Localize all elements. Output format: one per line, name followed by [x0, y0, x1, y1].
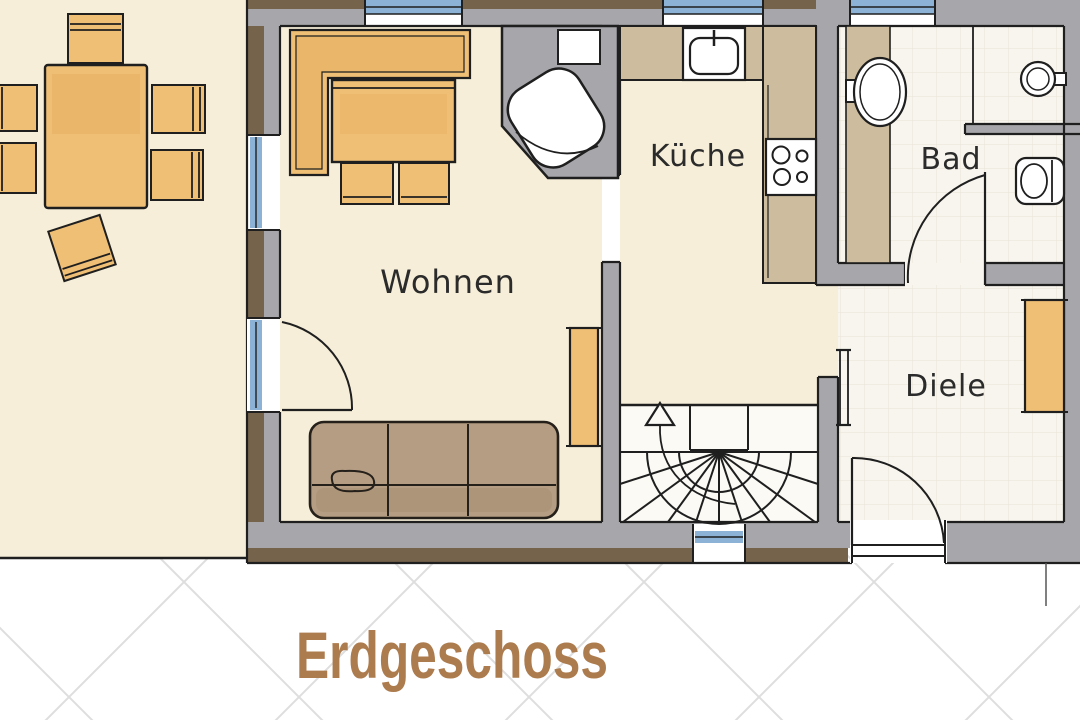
bad-window: [850, 0, 935, 26]
diele-label: Diele: [905, 369, 987, 404]
dining-chair: [68, 14, 123, 63]
page-title: Erdgeschoss: [296, 618, 608, 692]
kitchen-window: [663, 0, 763, 26]
dining-chair: [0, 143, 36, 193]
wardrobe: [1021, 300, 1068, 412]
stove: [766, 139, 816, 195]
dining-chair: [151, 150, 203, 200]
table: [332, 80, 455, 162]
sofa: [310, 422, 558, 518]
sideboard: [566, 328, 602, 446]
wohnen-label: Wohnen: [380, 263, 516, 301]
bad-label: Bad: [920, 142, 981, 177]
stair-window: [693, 524, 745, 563]
dining-chair: [0, 85, 37, 131]
toilet: [1016, 158, 1064, 204]
dining-chair: [152, 85, 205, 133]
dining-chair: [341, 163, 393, 204]
terrace: [0, 0, 247, 558]
kitchen-sink: [683, 28, 745, 80]
kueche-label: Küche: [650, 139, 746, 174]
terrace-side-window: [247, 135, 280, 230]
dining-chair: [399, 163, 449, 204]
wohnen-window: [365, 0, 462, 26]
floor-plan-page: Wohnen Küche Bad Diele Erdgeschoss: [0, 0, 1080, 720]
floor-plan-drawing: Wohnen Küche Bad Diele Erdgeschoss: [0, 0, 1080, 720]
